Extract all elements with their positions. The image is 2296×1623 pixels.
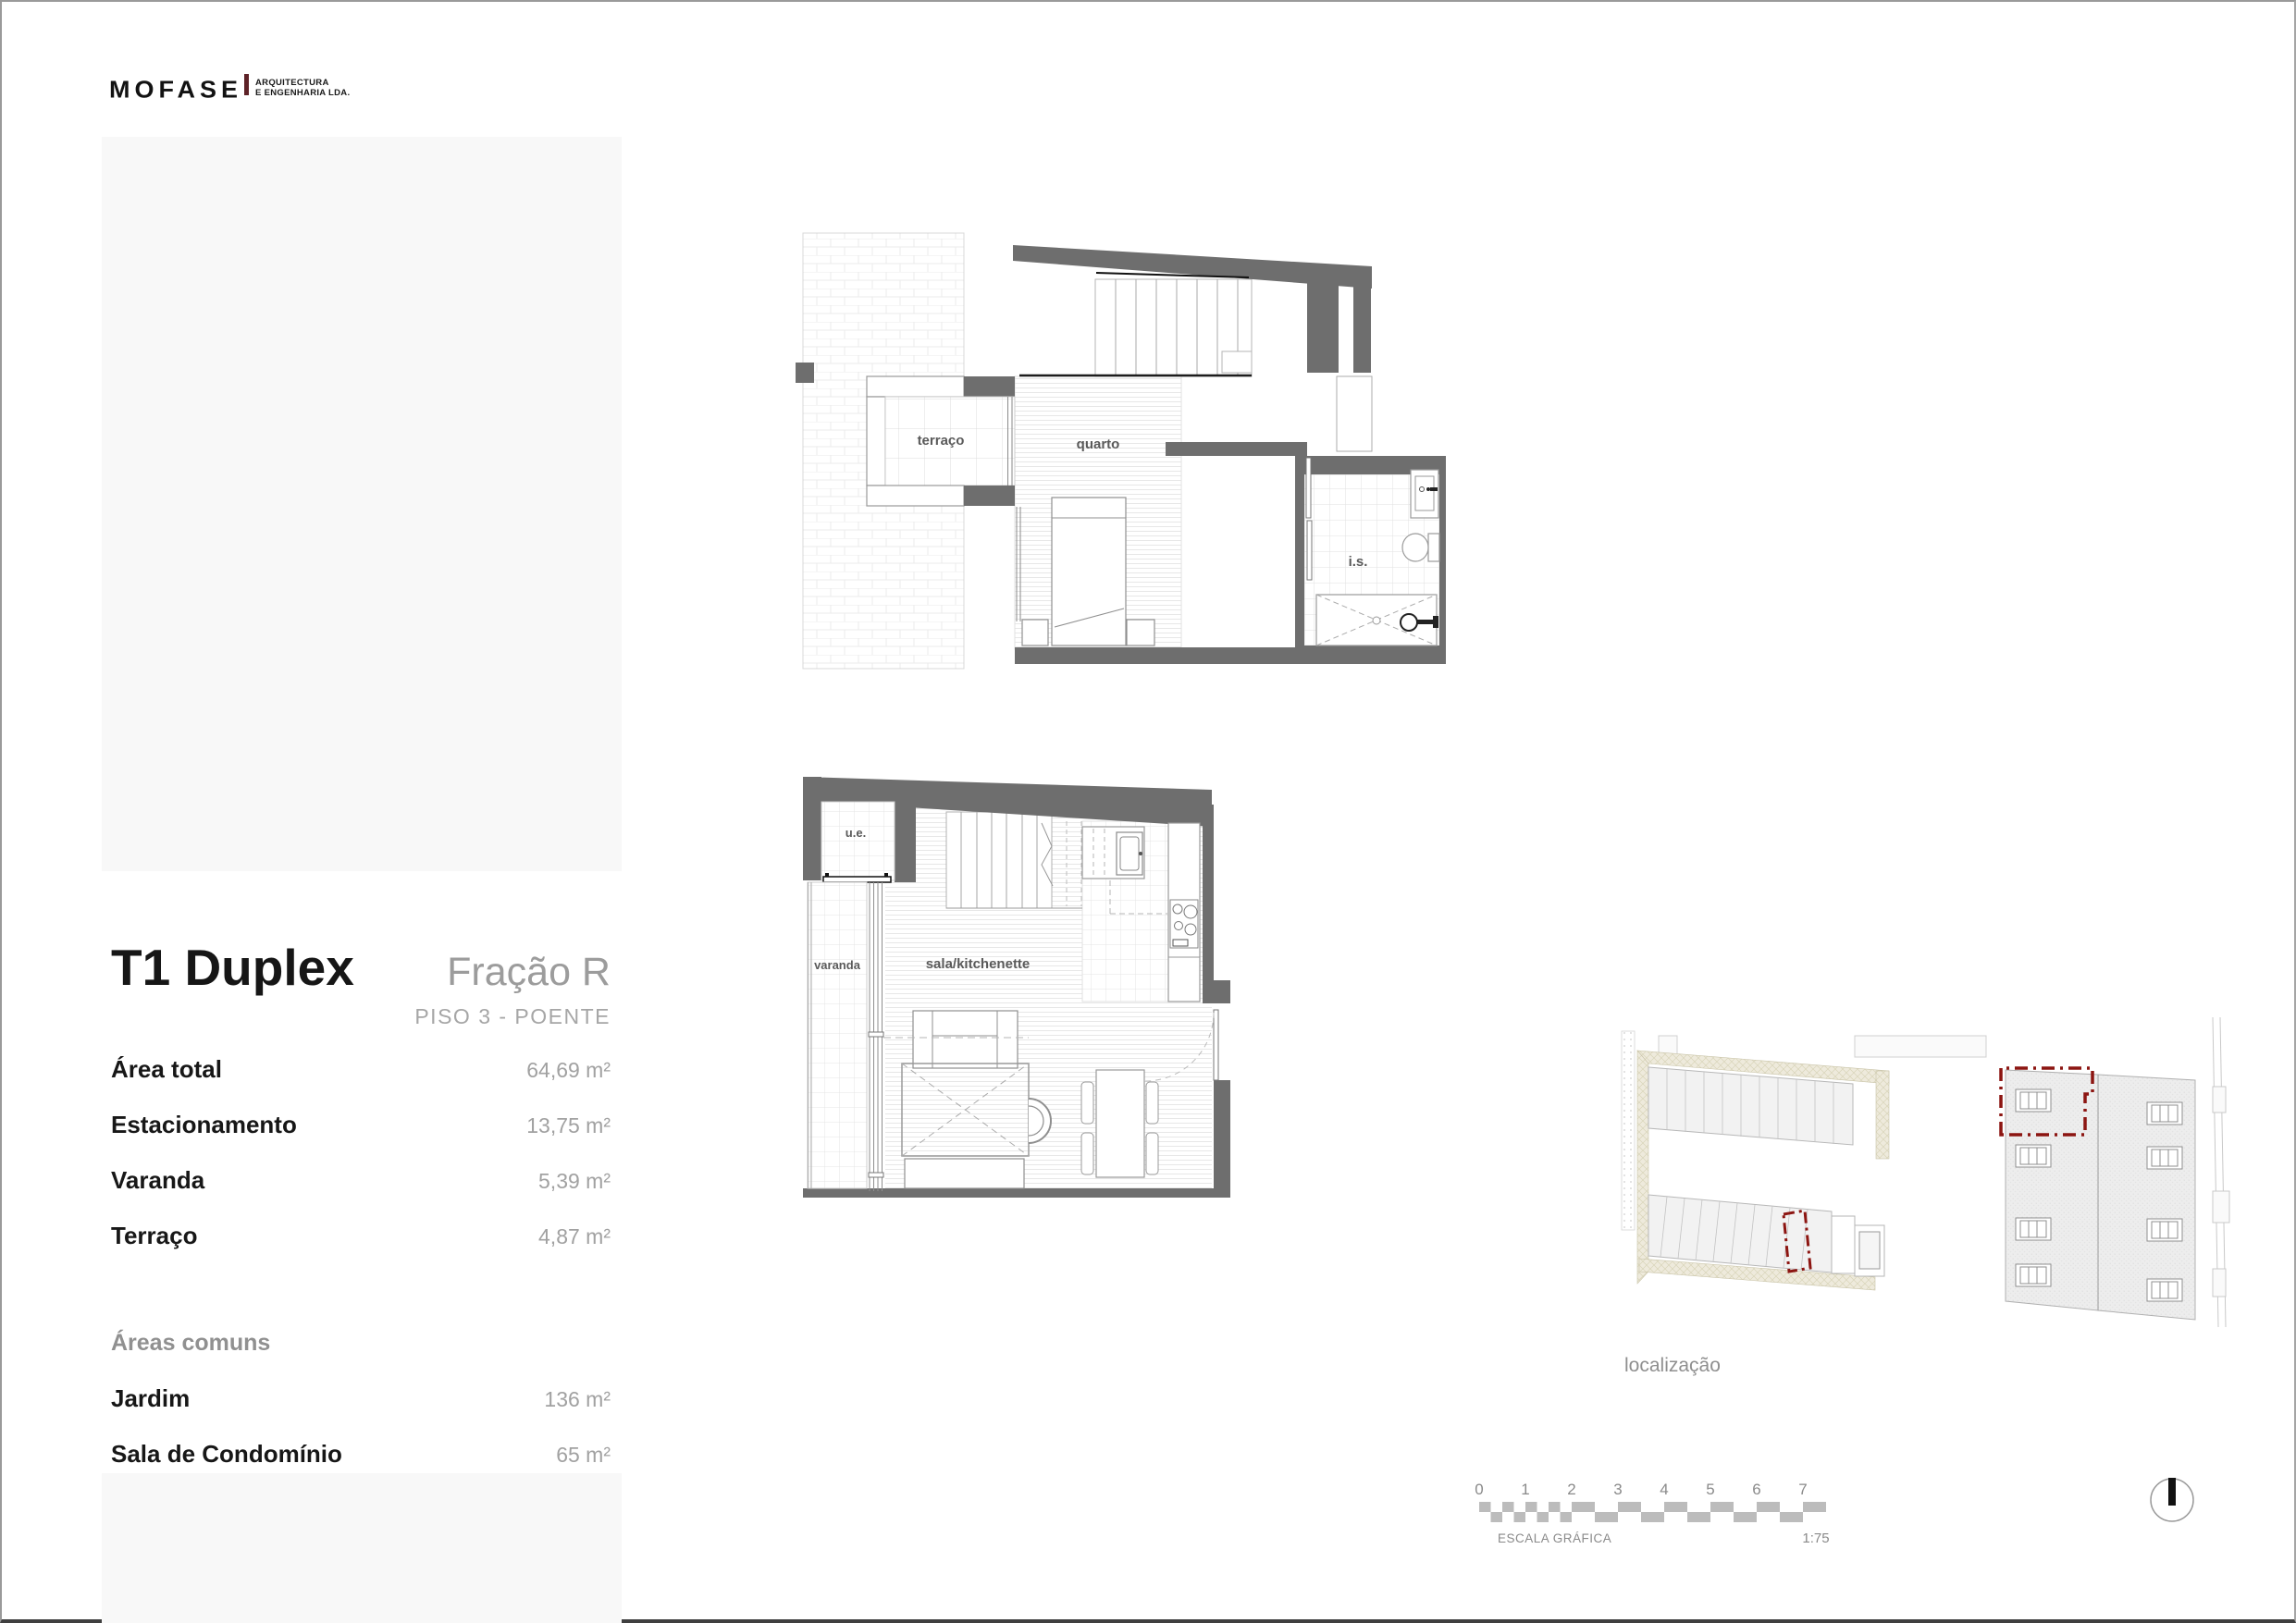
scale-tick: 7 — [1798, 1481, 1807, 1498]
table-row: Varanda 5,39 m² — [111, 1166, 611, 1222]
logo-brand: MOFASE — [109, 79, 242, 102]
toilet-fixture — [1402, 534, 1439, 561]
wall-right-stub — [1203, 980, 1230, 1003]
unit-title: T1 Duplex — [111, 938, 354, 997]
area-value: 13,75 m² — [526, 1113, 611, 1138]
table-row: Sala de Condomínio 65 m² — [111, 1440, 611, 1495]
building-block — [2006, 1070, 2195, 1320]
table-row: Área total 64,69 m² — [111, 1055, 611, 1111]
wall-right — [1307, 279, 1339, 373]
bench — [905, 1159, 1024, 1188]
wall-bathroom-top-left — [1166, 442, 1307, 474]
wall-stub — [796, 363, 814, 383]
area-label: Área total — [111, 1055, 222, 1084]
north-arrow-icon — [2144, 1472, 2200, 1528]
lower-floor-plan: u.e. varanda — [796, 768, 1240, 1202]
area-label: Jardim — [111, 1384, 190, 1413]
table-row: Terraço 4,87 m² — [111, 1222, 611, 1277]
stove — [1170, 900, 1198, 948]
sliding-door — [1307, 521, 1312, 580]
table-row: Jardim 136 m² — [111, 1384, 611, 1440]
logo-tagline-line2: E ENGENHARIA LDA. — [255, 89, 350, 99]
parking-row-bottom — [1648, 1195, 1832, 1273]
scale-tick: 3 — [1613, 1481, 1622, 1498]
common-areas-title: Áreas comuns — [111, 1330, 611, 1357]
photo-placeholder-top — [102, 137, 622, 871]
area-label: Terraço — [111, 1222, 197, 1250]
area-value: 136 m² — [544, 1387, 611, 1412]
area-label: Estacionamento — [111, 1111, 297, 1139]
areas-table: Área total 64,69 m² Estacionamento 13,75… — [111, 1055, 611, 1277]
unit-floor: PISO 3 - POENTE — [111, 1004, 611, 1029]
neighbor-outline — [1855, 1036, 1986, 1057]
scale-bar: 0 1 2 3 4 5 6 7 ESCALA GRÁFICA 1:75 — [1467, 1476, 1856, 1559]
scale-tick: 5 — [1706, 1481, 1714, 1498]
area-value: 64,69 m² — [526, 1058, 611, 1083]
location-label: localização — [1624, 1355, 1721, 1376]
wall-bottom — [1015, 647, 1446, 664]
neighbor-outline — [1659, 1036, 1677, 1054]
area-value: 5,39 m² — [538, 1169, 611, 1194]
room-label: terraço — [918, 433, 965, 449]
area-label: Sala de Condomínio — [111, 1440, 342, 1469]
room-label: sala/kitchenette — [926, 956, 1031, 972]
area-label: Varanda — [111, 1166, 204, 1195]
logo-tagline: ARQUITECTURA E ENGENHARIA LDA. — [255, 79, 350, 98]
room-label: varanda — [814, 958, 861, 972]
logo-tagline-line1: ARQUITECTURA — [255, 79, 350, 89]
logo: MOFASE ARQUITECTURA E ENGENHARIA LDA. — [109, 78, 350, 102]
scale-tick: 0 — [1475, 1481, 1483, 1498]
wall-right-lower — [1214, 1080, 1230, 1191]
room-label: i.s. — [1349, 554, 1368, 570]
sofa — [913, 1011, 1018, 1068]
shower-fixture — [1316, 595, 1438, 646]
scale-bar-blocks — [1479, 1502, 1826, 1522]
site-verge — [1622, 1031, 1635, 1230]
parking-row-top — [1648, 1067, 1853, 1145]
upper-floor-plan: i.s. terraço quarto — [796, 222, 1462, 675]
logo-tick-icon — [244, 74, 249, 95]
area-value: 65 m² — [556, 1443, 611, 1468]
stairs-upper — [1019, 279, 1252, 376]
scale-bar-label: ESCALA GRÁFICA — [1498, 1531, 1611, 1545]
closet-shaft — [1337, 376, 1372, 451]
location-plan: localização — [1610, 999, 2257, 1387]
photo-placeholder-bottom — [102, 1473, 622, 1623]
bathroom: i.s. — [1295, 456, 1446, 664]
unit-fraction: Fração R — [447, 950, 611, 995]
varanda-room: varanda — [808, 882, 867, 1188]
scale-ratio: 1:75 — [1802, 1531, 1829, 1546]
wall-ue — [895, 799, 916, 882]
sliding-door — [1306, 458, 1311, 518]
scale-tick: 1 — [1521, 1481, 1529, 1498]
table-row: Estacionamento 13,75 m² — [111, 1111, 611, 1166]
sink-fixture — [1411, 470, 1438, 518]
wall-bottom — [803, 1188, 1230, 1198]
entry-core — [1832, 1216, 1884, 1276]
scale-tick: 6 — [1752, 1481, 1760, 1498]
street-edge — [2213, 1017, 2229, 1327]
wall-right — [1353, 279, 1371, 373]
ue-room: u.e. — [821, 802, 895, 882]
room-label: u.e. — [846, 826, 866, 840]
wall-left — [803, 777, 821, 880]
room-label: quarto — [1077, 436, 1120, 452]
plan-sheet: MOFASE ARQUITECTURA E ENGENHARIA LDA. T1… — [0, 0, 2296, 1623]
wall-right — [1203, 805, 1214, 980]
sliding-glass-door — [869, 882, 883, 1191]
title-block: T1 Duplex Fração R PISO 3 - POENTE — [111, 938, 611, 1029]
area-value: 4,87 m² — [538, 1224, 611, 1249]
common-areas-section: Áreas comuns Jardim 136 m² Sala de Condo… — [111, 1330, 611, 1495]
scale-tick: 2 — [1567, 1481, 1575, 1498]
scale-tick: 4 — [1660, 1481, 1668, 1498]
